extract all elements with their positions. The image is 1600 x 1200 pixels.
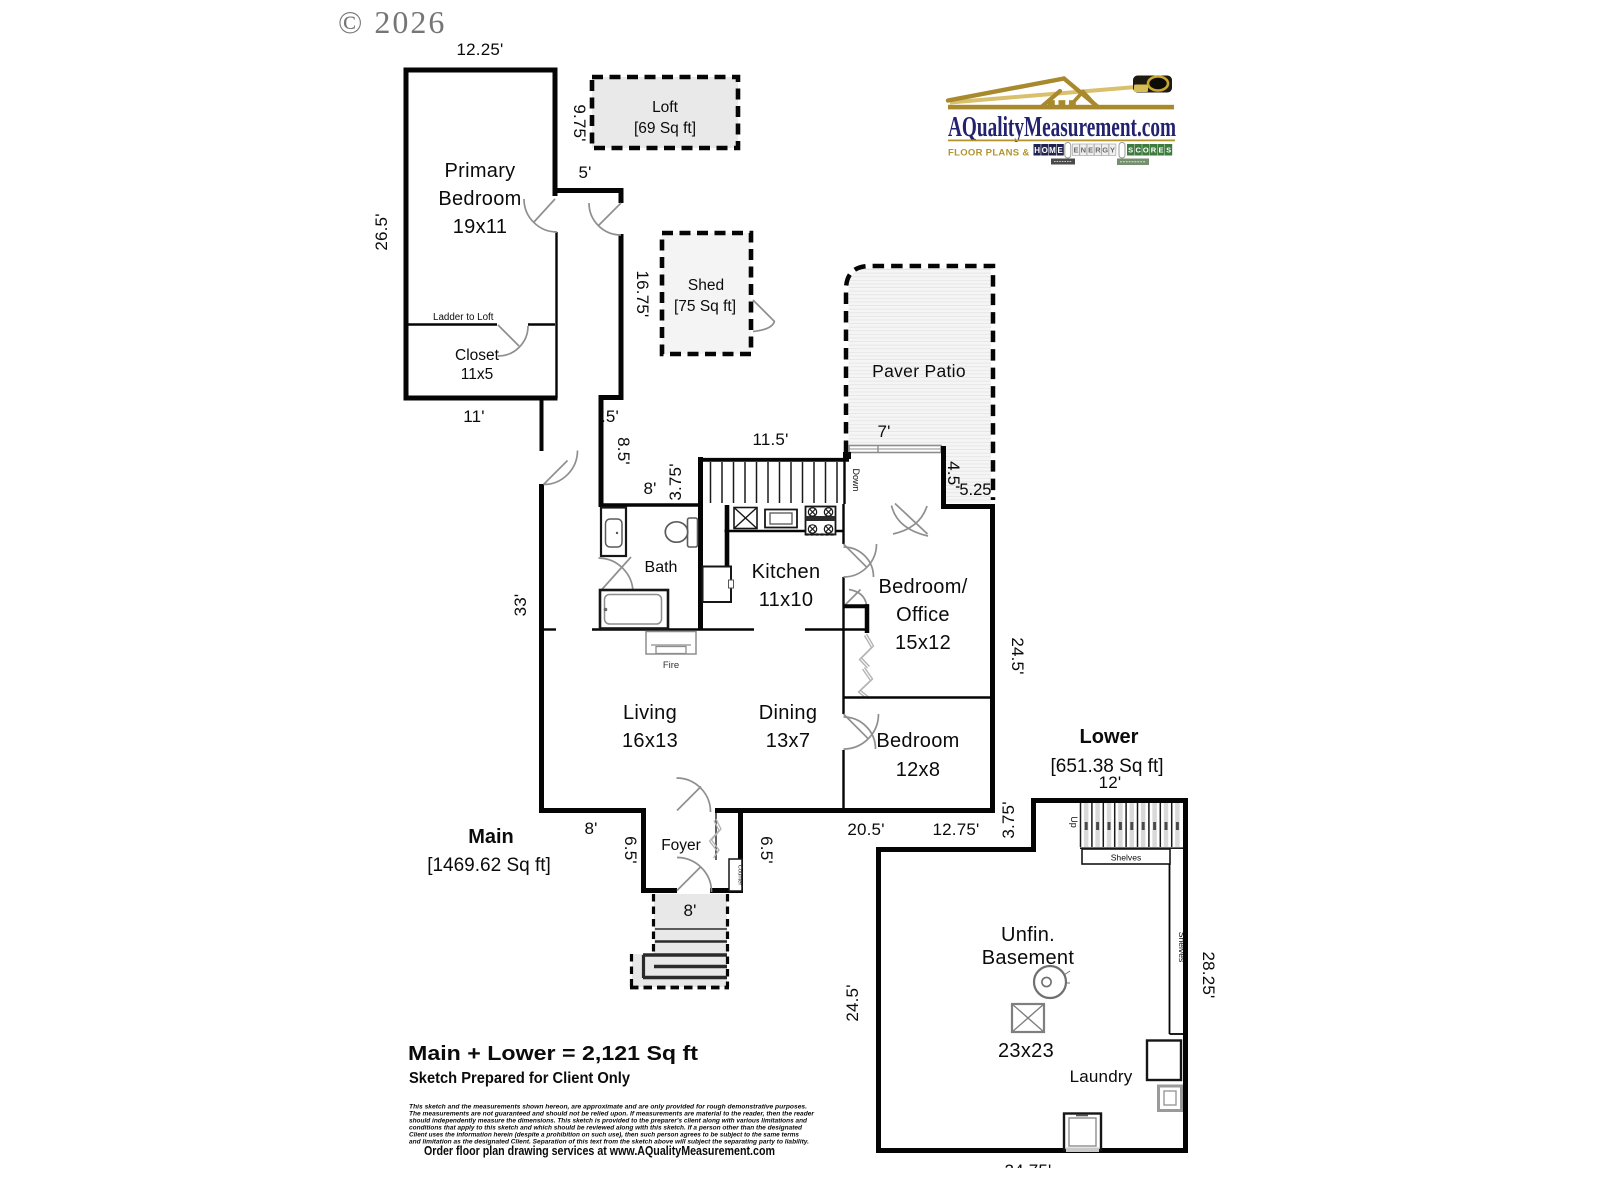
svg-text:Loft: Loft	[652, 99, 679, 116]
svg-text:11x5: 11x5	[461, 366, 493, 383]
svg-text:Living: Living	[623, 702, 677, 724]
svg-text:Closet: Closet	[455, 347, 500, 364]
svg-text:Shed: Shed	[688, 277, 724, 294]
svg-text:FLOOR PLANS &: FLOOR PLANS &	[948, 148, 1029, 159]
svg-text:3.75': 3.75'	[999, 801, 1018, 838]
svg-text:E: E	[1073, 146, 1078, 155]
svg-text:20.5': 20.5'	[847, 820, 884, 839]
svg-text:11x10: 11x10	[759, 589, 814, 611]
svg-text:[1469.62 Sq ft]: [1469.62 Sq ft]	[427, 855, 551, 876]
svg-text:[651.38 Sq ft]: [651.38 Sq ft]	[1050, 756, 1163, 777]
svg-text:© 2026: © 2026	[338, 4, 446, 40]
svg-text:Basement: Basement	[982, 947, 1075, 969]
svg-text:AQualityMeasurement.com: AQualityMeasurement.com	[948, 112, 1176, 143]
svg-text:5.25': 5.25'	[959, 481, 994, 499]
svg-text:The measurements are not guara: The measurements are not guaranteed and …	[409, 1111, 814, 1118]
svg-text:16x13: 16x13	[622, 730, 678, 752]
svg-text:H: H	[1034, 146, 1040, 155]
svg-text:23x23: 23x23	[998, 1040, 1054, 1062]
svg-text:15x12: 15x12	[895, 632, 951, 654]
svg-text:conditions that apply to this: conditions that apply to this sketch and…	[409, 1125, 803, 1132]
svg-text:5': 5'	[578, 163, 591, 182]
svg-text:3.75': 3.75'	[666, 463, 685, 500]
svg-text:R: R	[1095, 146, 1101, 155]
svg-text:R: R	[1151, 146, 1157, 155]
svg-text:6.5': 6.5'	[757, 836, 776, 864]
svg-text:O: O	[1143, 146, 1149, 155]
svg-text:This sketch and the measuremen: This sketch and the measurements shown h…	[409, 1104, 807, 1111]
svg-text:8': 8'	[643, 479, 656, 498]
svg-text:[69 Sq ft]: [69 Sq ft]	[634, 120, 696, 137]
svg-text:Bedroom: Bedroom	[876, 730, 959, 752]
svg-text:Foyer: Foyer	[661, 837, 701, 854]
svg-text:Shelves: Shelves	[1111, 853, 1142, 863]
svg-text:8': 8'	[683, 901, 696, 920]
svg-text:28.25': 28.25'	[1199, 952, 1218, 999]
svg-text:G: G	[1102, 146, 1108, 155]
svg-text:should independently measure t: should independently measure the dimensi…	[409, 1118, 808, 1125]
svg-text:E: E	[1088, 146, 1093, 155]
svg-text:N: N	[1081, 146, 1086, 155]
svg-text:16.75': 16.75'	[633, 271, 652, 318]
svg-text:Main: Main	[468, 826, 514, 848]
svg-text:Main + Lower = 2,121 Sq ft: Main + Lower = 2,121 Sq ft	[408, 1042, 698, 1065]
svg-text:.5': .5'	[601, 407, 619, 426]
svg-text:12.25': 12.25'	[457, 40, 504, 59]
svg-text:Y: Y	[1110, 146, 1115, 155]
svg-text:M: M	[1049, 146, 1056, 155]
svg-text:24.5': 24.5'	[1008, 637, 1027, 674]
svg-text:13x7: 13x7	[766, 730, 811, 752]
svg-text:Bedroom: Bedroom	[438, 188, 521, 210]
svg-text:S: S	[1166, 146, 1171, 155]
svg-text:Bedroom/: Bedroom/	[878, 576, 967, 598]
svg-text:Counter: Counter	[737, 865, 743, 886]
svg-text:11': 11'	[463, 407, 485, 426]
svg-text:8.5': 8.5'	[614, 437, 633, 465]
svg-text:11.5': 11.5'	[752, 430, 788, 449]
svg-text:8': 8'	[584, 819, 597, 838]
svg-text:Down: Down	[851, 468, 861, 491]
svg-text:Primary: Primary	[445, 160, 516, 182]
svg-text:24.5': 24.5'	[843, 984, 862, 1021]
svg-text:9.75': 9.75'	[570, 104, 589, 141]
svg-text:Paver Patio: Paver Patio	[872, 361, 966, 381]
svg-text:33': 33'	[511, 594, 530, 617]
svg-text:19x11: 19x11	[453, 216, 508, 238]
svg-text:Kitchen: Kitchen	[752, 561, 821, 583]
svg-text:E: E	[1158, 146, 1163, 155]
svg-text:7': 7'	[877, 422, 890, 441]
svg-text:Office: Office	[896, 604, 950, 626]
svg-text:Laundry: Laundry	[1070, 1067, 1133, 1086]
svg-text:12x8: 12x8	[896, 759, 941, 781]
svg-text:Lower: Lower	[1080, 726, 1139, 748]
svg-text:6.5': 6.5'	[621, 836, 640, 864]
svg-text:S: S	[1128, 146, 1133, 155]
svg-text:Ladder to Loft: Ladder to Loft	[433, 312, 494, 323]
svg-text:Shelves: Shelves	[1177, 932, 1187, 963]
svg-text:E: E	[1058, 146, 1064, 155]
svg-text:12.75': 12.75'	[933, 820, 980, 839]
svg-text:Order floor plan drawing servi: Order floor plan drawing services at www…	[424, 1143, 775, 1158]
svg-text:Fire: Fire	[663, 660, 679, 671]
svg-text:Dining: Dining	[759, 702, 818, 724]
svg-text:O: O	[1042, 146, 1048, 155]
svg-text:Unfin.: Unfin.	[1001, 924, 1055, 946]
svg-text:[75 Sq ft]: [75 Sq ft]	[674, 298, 736, 315]
svg-text:Sketch Prepared for Client Onl: Sketch Prepared for Client Only	[409, 1070, 630, 1087]
svg-text:Bath: Bath	[645, 559, 678, 576]
svg-text:Up: Up	[1069, 816, 1079, 828]
svg-text:Client uses the information he: Client uses the information herein (desp…	[409, 1132, 799, 1139]
svg-text:C: C	[1135, 146, 1141, 155]
svg-text:26.5': 26.5'	[372, 213, 391, 250]
